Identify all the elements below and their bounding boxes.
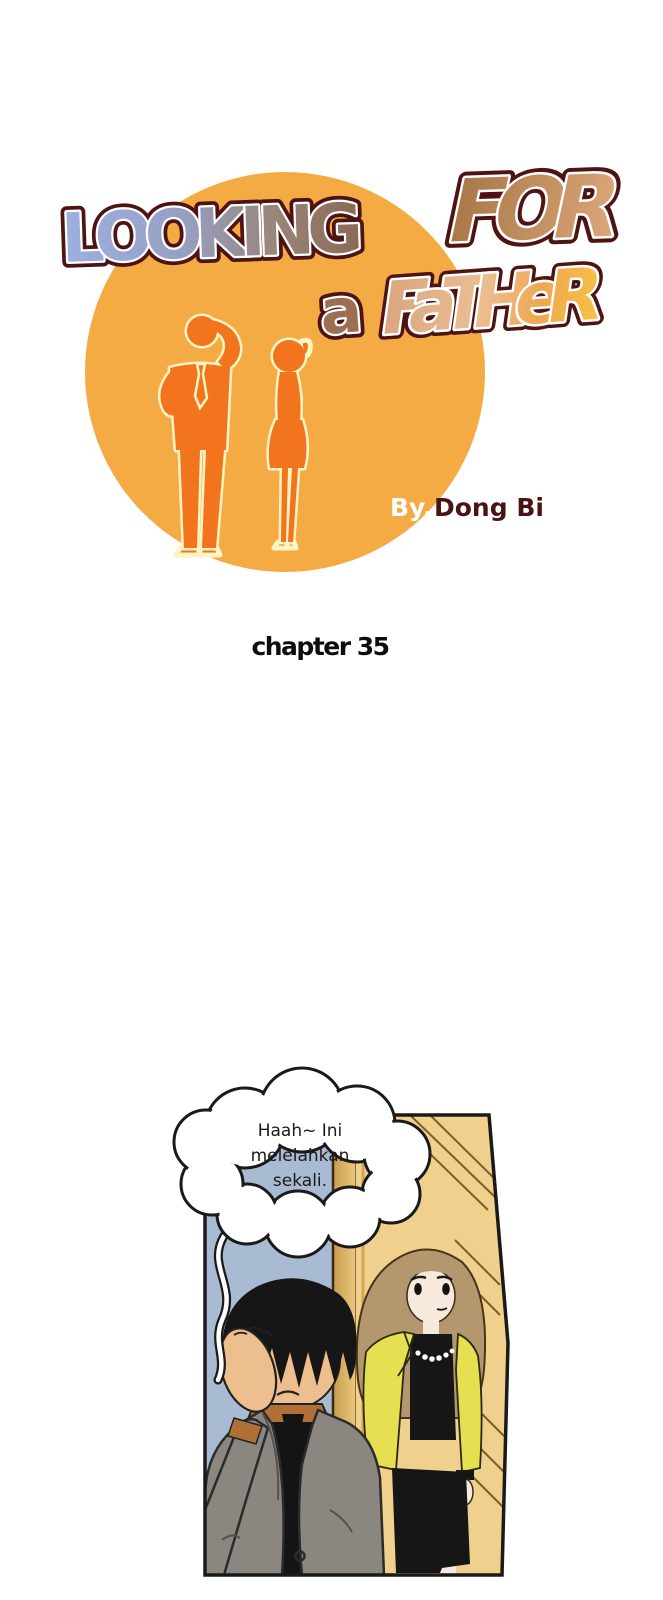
chapter-label: chapter 35	[0, 632, 640, 661]
woman-skirt	[392, 1468, 470, 1573]
cover-art: LOOKING LOOKING FOR FOR a a FaTHeR FaTHe…	[0, 0, 663, 680]
title-word-father: FaTHeR	[375, 252, 608, 353]
byline-author: Dong Bi	[434, 493, 544, 522]
title-word-for: FOR	[439, 155, 630, 262]
byline: By. Dong Bi	[390, 493, 544, 522]
title-word-looking: LOOKING	[60, 189, 365, 278]
woman-top	[410, 1334, 456, 1440]
byline-prefix: By.	[390, 493, 433, 522]
title-word-a: a	[318, 273, 365, 349]
woman-eye-right	[442, 1283, 450, 1295]
bubble-text-line-3: sekali.	[273, 1171, 327, 1191]
woman-eye-left	[414, 1283, 422, 1295]
bubble-text-line-2: melelahkan	[251, 1146, 350, 1166]
page: { "cover": { "title": { "word1": "LOOKIN…	[0, 0, 663, 1600]
woman-neck	[423, 1318, 439, 1336]
comic-panel: Haah~ Ini melelahkan sekali.	[0, 1040, 663, 1600]
bubble-text-line-1: Haah~ Ini	[258, 1121, 343, 1141]
